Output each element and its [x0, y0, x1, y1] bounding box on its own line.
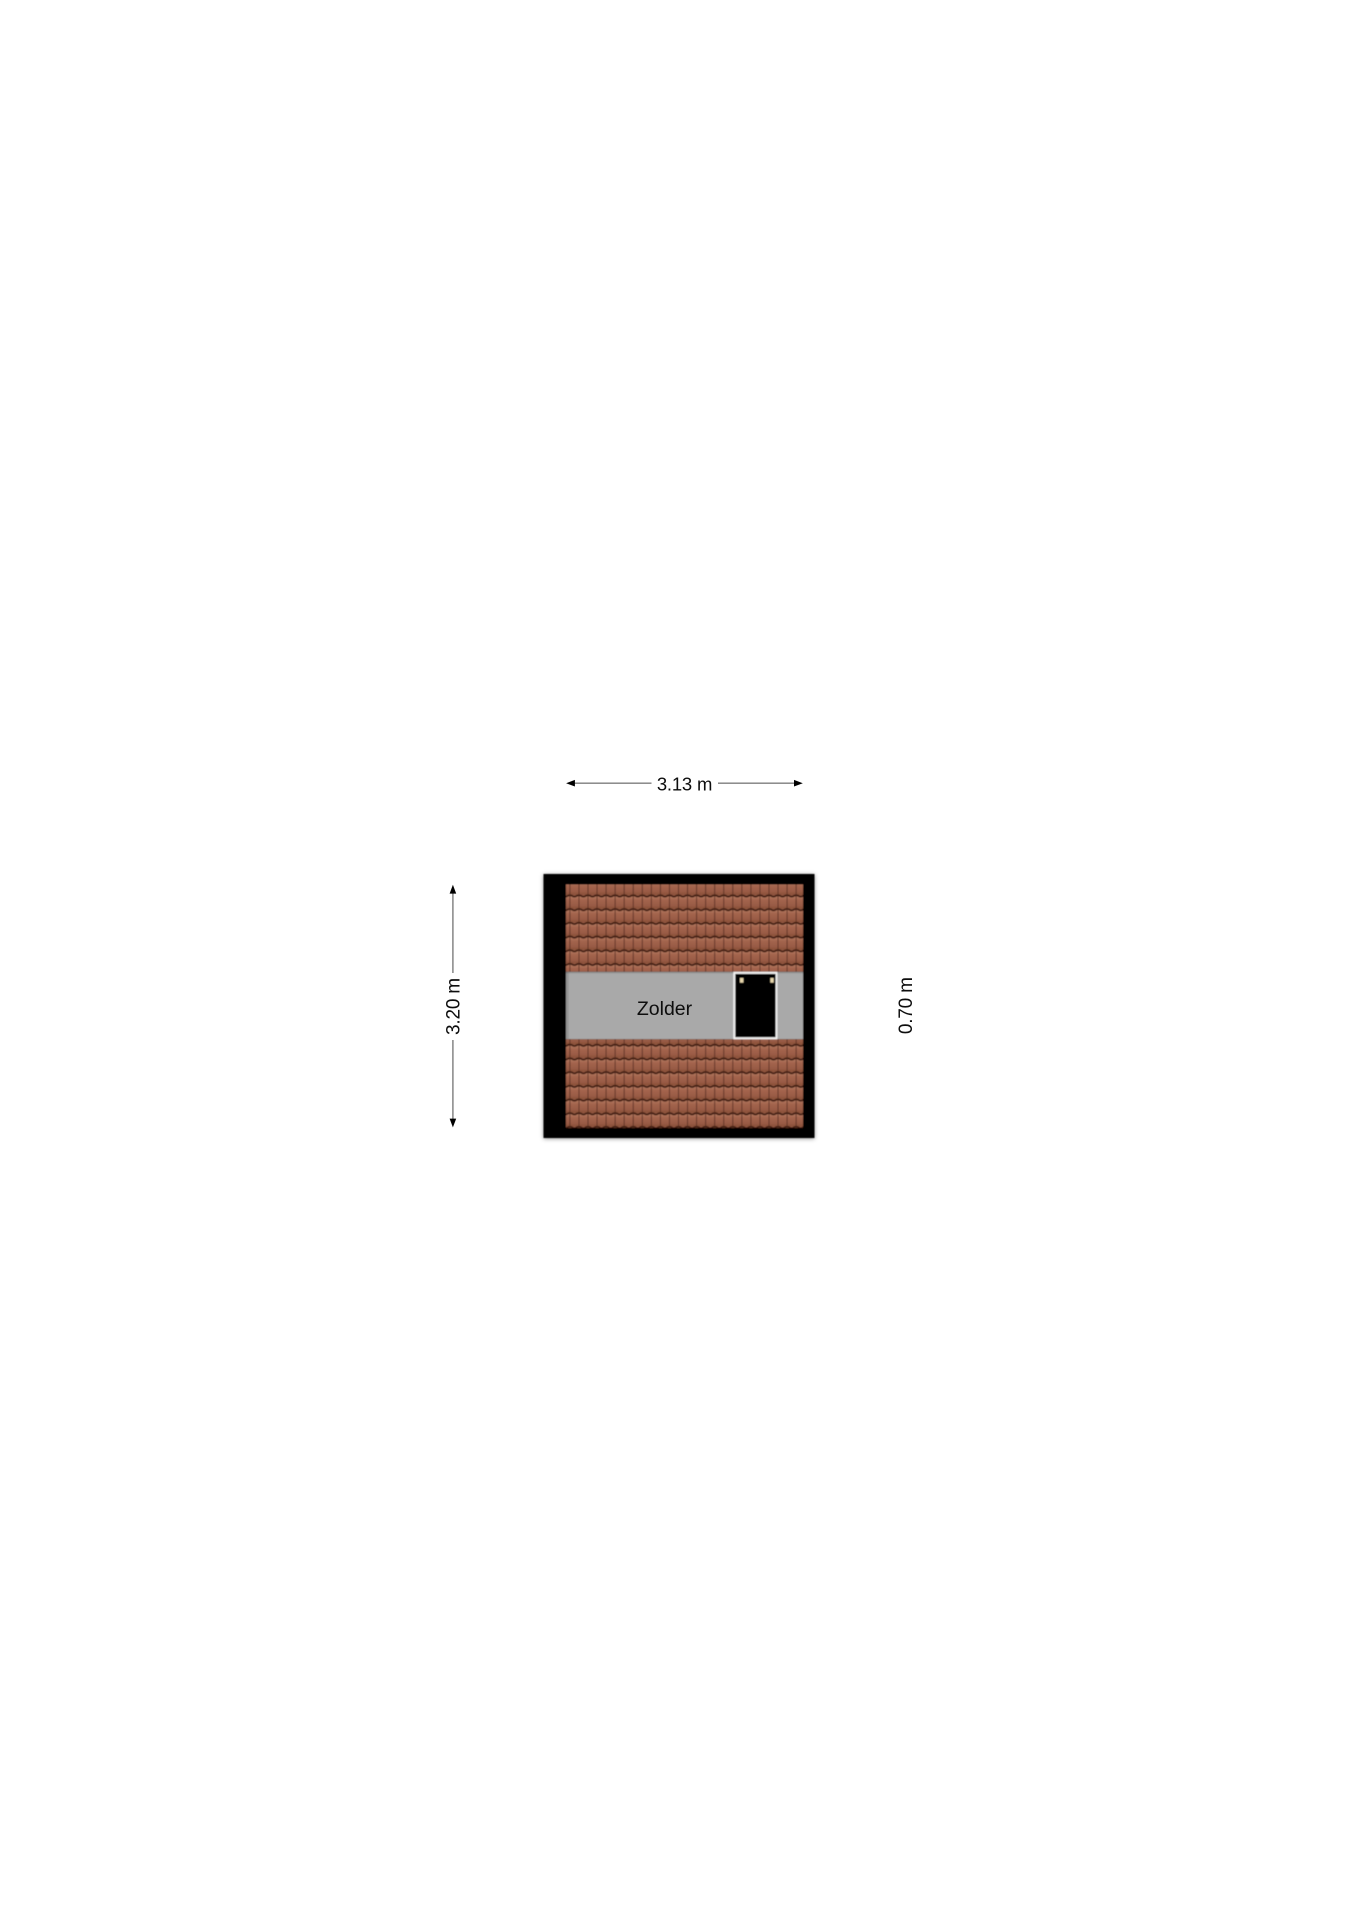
svg-text:0.70 m: 0.70 m: [896, 977, 917, 1034]
svg-text:3.13 m: 3.13 m: [657, 773, 712, 794]
svg-text:3.20 m: 3.20 m: [443, 978, 464, 1035]
svg-text:Zolder: Zolder: [637, 998, 693, 1020]
